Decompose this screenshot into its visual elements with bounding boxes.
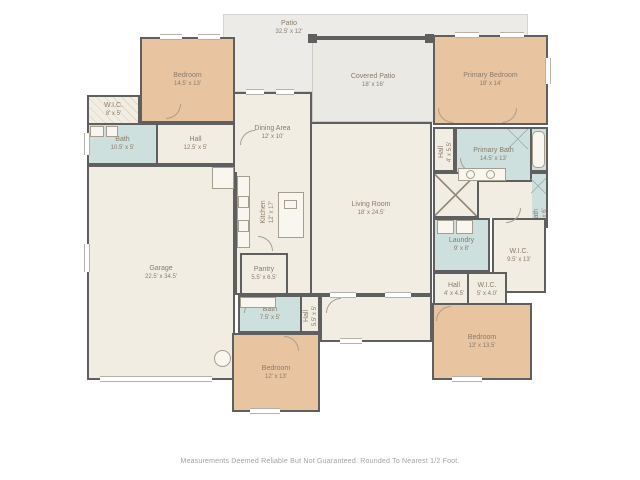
room-size: 7.5' x 5' — [260, 314, 280, 322]
room-name: Primary Bedroom — [463, 72, 517, 80]
front-door-opening — [340, 338, 362, 344]
window-marker — [330, 292, 356, 298]
room-living-room: Living Room 18' x 24.5' — [312, 122, 432, 295]
room-label: Kitchen 12' x 17' — [260, 200, 276, 223]
room-name: Hall — [303, 310, 311, 322]
window-marker — [276, 89, 294, 95]
disclaimer-text: Measurements Deemed Reliable But Not Gua… — [0, 458, 640, 465]
garage-door-opening — [100, 376, 212, 382]
room-size: 18' x 14' — [480, 80, 502, 88]
room-name: Pantry — [254, 266, 274, 274]
room-label: Covered Patio 18' x 16' — [313, 40, 433, 121]
window-marker — [198, 34, 220, 40]
bath-sink — [90, 126, 104, 137]
sink — [466, 170, 475, 179]
room-pantry: Pantry 5.5' x 6.5' — [240, 253, 288, 295]
room-name: Patio — [281, 20, 297, 28]
room-hall-right: Hall 4' x 5.5' — [433, 127, 455, 172]
room-label: Hall 5.5' x 5' — [303, 306, 319, 326]
room-name: Hall — [189, 136, 201, 144]
room-hall-left: Hall 12.5' x 5' — [156, 123, 233, 165]
window-marker — [250, 408, 280, 414]
room-label: Bedroom 14.5' x 13' — [142, 39, 233, 121]
room-name: W.I.C. — [104, 102, 123, 110]
room-size: 10.5' x 5' — [111, 144, 135, 152]
room-size: 13' x 13.5' — [469, 342, 496, 350]
room-label: Living Room 18' x 24.5' — [312, 124, 430, 293]
room-size: 5.5' x 6.5' — [251, 274, 276, 282]
sink — [486, 170, 495, 179]
room-size: 22.5' x 34.5' — [145, 273, 177, 281]
window-marker — [500, 32, 524, 38]
room-size: 18' x 16' — [362, 81, 384, 89]
shower — [506, 129, 530, 149]
window-marker — [455, 32, 479, 38]
room-size: 32.5' x 12' — [276, 28, 303, 36]
room-name: Laundry — [449, 237, 474, 245]
toilet — [106, 126, 118, 137]
window-marker — [160, 34, 182, 40]
bathtub — [240, 297, 276, 308]
room-size: 12.5' x 5' — [184, 144, 208, 152]
room-size: 5' x 4.0' — [477, 290, 497, 298]
room-name: Hall — [438, 146, 446, 158]
room-label: W.I.C. 8' x 5' — [89, 97, 138, 123]
room-name: Bedroom — [468, 334, 496, 342]
room-size: 14.5' x 13' — [174, 80, 201, 88]
room-size: 12' x 10' — [262, 133, 284, 141]
island-sink — [284, 200, 297, 209]
room-label: Hall 12.5' x 5' — [158, 125, 233, 163]
room-covered-patio: Covered Patio 18' x 16' — [312, 36, 434, 122]
room-wic-left: W.I.C. 8' x 5' — [87, 95, 140, 125]
room-garage: Garage 22.5' x 34.5' — [87, 165, 235, 380]
kitchen-counter — [237, 176, 250, 248]
patio-post — [308, 34, 317, 43]
room-name: Covered Patio — [351, 73, 395, 81]
room-name: W.I.C. — [509, 248, 528, 256]
room-name: Living Room — [352, 201, 391, 209]
room-label: Patio 32.5' x 12' — [244, 20, 334, 36]
room-label: Bedroom 12' x 13' — [234, 335, 318, 410]
room-name: Bedroom — [173, 72, 201, 80]
room-bedroom-bottom-middle: Bedroom 12' x 13' — [232, 333, 320, 412]
room-size: 4' x 5.5' — [446, 142, 454, 162]
room-name: Hall — [448, 282, 460, 290]
room-size: 12' x 13' — [265, 373, 287, 381]
window-marker — [385, 292, 411, 298]
room-size: 9.5' x 13' — [507, 256, 531, 264]
room-name: W.I.C. — [477, 282, 496, 290]
room-size: 18' x 24.5' — [358, 209, 385, 217]
washer — [437, 220, 454, 234]
room-name: Bedroom — [262, 365, 290, 373]
appliance — [238, 220, 249, 232]
garage-platform — [212, 167, 234, 189]
room-label: Hall 4' x 5.5' — [438, 142, 454, 162]
room-label: Pantry 5.5' x 6.5' — [242, 255, 286, 293]
shower — [531, 174, 546, 198]
room-name: Bath — [115, 136, 129, 144]
window-marker — [545, 58, 551, 84]
window-marker — [246, 89, 264, 95]
room-size: 5.5' x 5' — [311, 306, 319, 326]
room-label: W.I.C. 5' x 4.0' — [469, 274, 505, 306]
bathtub — [532, 131, 545, 168]
room-size: 8' x 5' — [106, 110, 121, 118]
window-marker — [84, 244, 90, 272]
room-name: Garage — [149, 265, 172, 273]
room-label: Garage 22.5' x 34.5' — [89, 167, 233, 378]
room-size: 12' x 17' — [268, 201, 276, 223]
kitchen-island — [278, 192, 304, 238]
dryer — [456, 220, 473, 234]
window-marker — [452, 376, 482, 382]
room-dining-area: Dining Area 12' x 10' — [233, 92, 312, 172]
room-name: Dining Area — [254, 125, 290, 133]
room-name: Kitchen — [260, 200, 268, 223]
floor-plan: Patio 32.5' x 12' Covered Patio 18' x 16… — [0, 0, 640, 480]
water-heater — [214, 350, 231, 367]
room-bedroom-top-left: Bedroom 14.5' x 13' — [140, 37, 235, 123]
stove — [238, 196, 249, 208]
room-hall-bottom: Hall 5.5' x 5' — [302, 295, 320, 333]
room-size: 4' x 4.5' — [444, 290, 464, 298]
room-size: 9' x 8' — [454, 245, 469, 253]
room-size: 14.5' x 13' — [480, 155, 507, 163]
